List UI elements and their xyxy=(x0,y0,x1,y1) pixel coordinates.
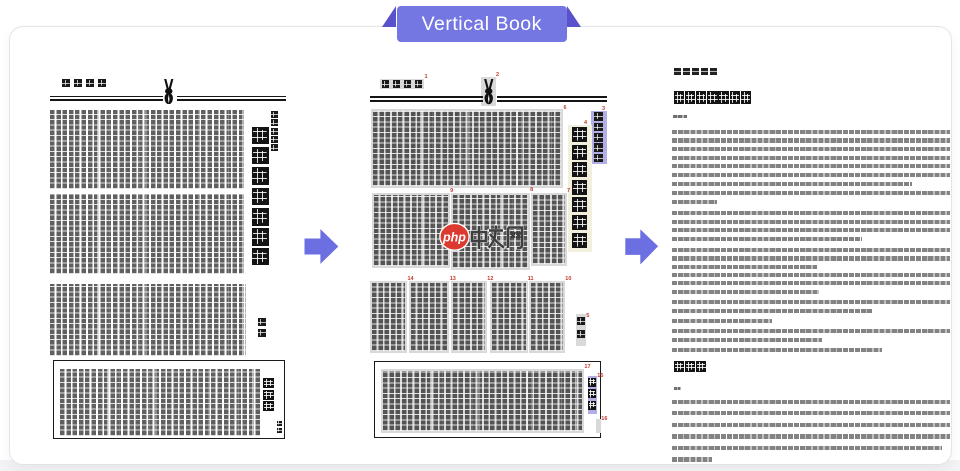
svg-text:php: php xyxy=(442,231,466,245)
